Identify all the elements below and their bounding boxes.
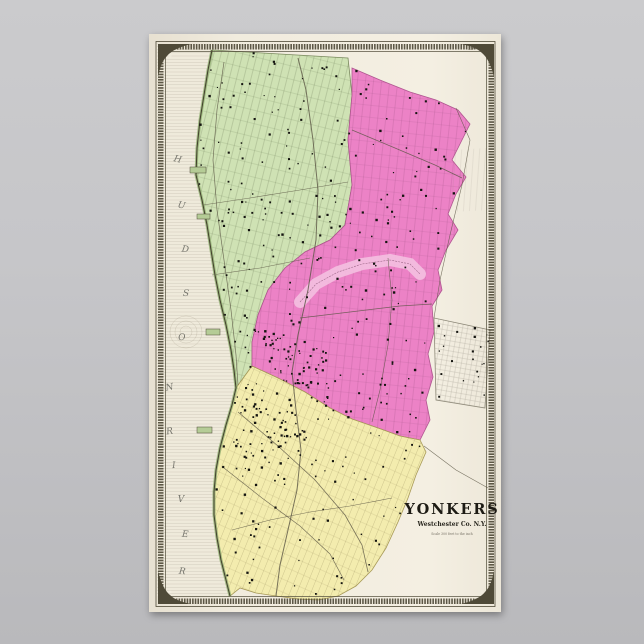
map-subtitle: Westchester Co. N.Y. [417,521,487,528]
river-letter: O [178,333,187,344]
yonkers-map-poster: HUDSONRIVER YONKERS Westchester Co. N.Y.… [0,0,644,644]
pier [190,167,206,173]
river-letter: E [181,530,190,541]
map-scale-note: Scale 300 feet to the inch [431,532,473,536]
page-number: 39 [468,46,474,52]
river-letter: S [183,289,190,299]
pier [197,427,212,433]
pier [206,329,220,335]
river-letter: D [180,244,190,255]
pier [197,214,210,219]
map-title: YONKERS [403,501,499,518]
region-east-village-grid [434,318,490,408]
river-letter: R [165,427,174,438]
poster-background: HUDSONRIVER YONKERS Westchester Co. N.Y.… [0,0,644,644]
river-letter: R [177,567,186,578]
